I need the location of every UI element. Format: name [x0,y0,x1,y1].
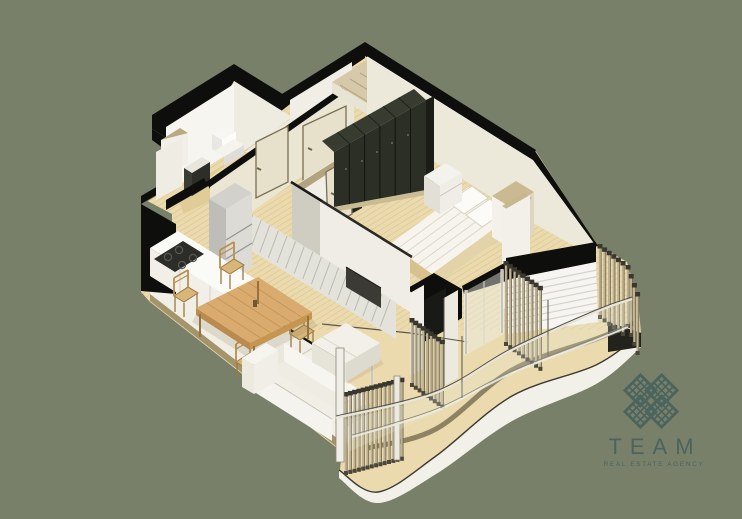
svg-text:REAL ESTATE AGENCY: REAL ESTATE AGENCY [604,461,705,468]
svg-text:TEAM: TEAM [608,434,701,459]
